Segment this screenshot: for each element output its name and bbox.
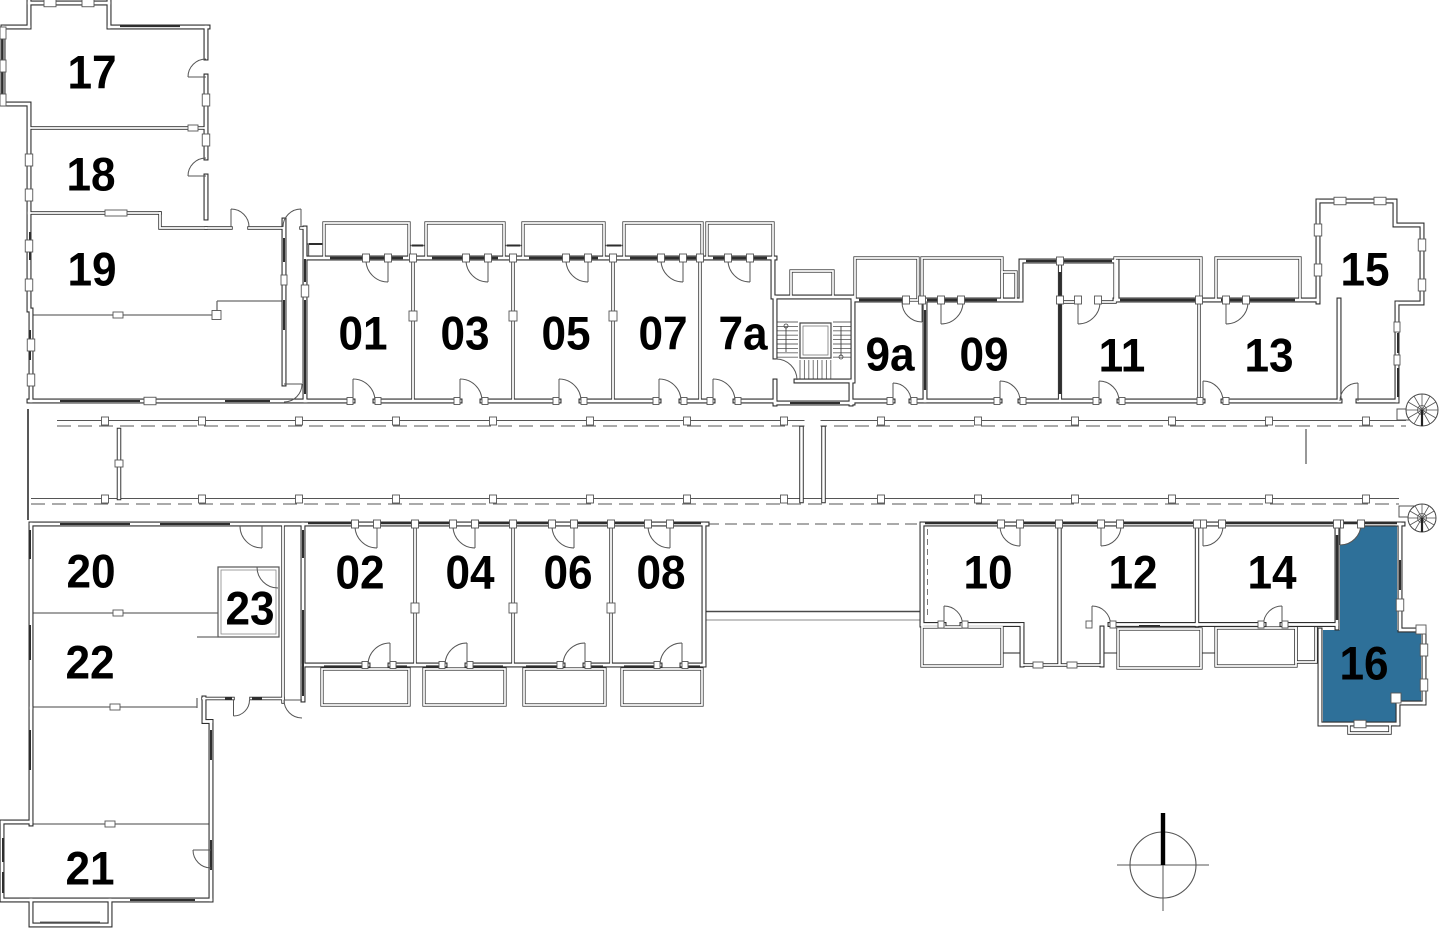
svg-text:11: 11 xyxy=(1099,328,1146,382)
svg-text:07: 07 xyxy=(638,306,687,360)
svg-text:09: 09 xyxy=(959,327,1008,381)
svg-text:04: 04 xyxy=(445,545,495,599)
svg-text:10: 10 xyxy=(963,545,1012,599)
svg-text:15: 15 xyxy=(1340,242,1389,296)
svg-text:20: 20 xyxy=(66,544,115,598)
svg-text:7a: 7a xyxy=(718,306,768,360)
svg-text:02: 02 xyxy=(335,545,384,599)
svg-text:19: 19 xyxy=(67,242,116,296)
svg-text:21: 21 xyxy=(65,841,114,895)
svg-text:03: 03 xyxy=(440,306,489,360)
svg-text:01: 01 xyxy=(338,306,387,360)
svg-text:23: 23 xyxy=(225,581,274,635)
svg-text:9a: 9a xyxy=(865,327,915,381)
svg-text:14: 14 xyxy=(1247,545,1297,599)
svg-text:13: 13 xyxy=(1244,328,1293,382)
svg-text:05: 05 xyxy=(541,306,590,360)
svg-text:22: 22 xyxy=(65,635,114,689)
svg-text:08: 08 xyxy=(636,545,685,599)
svg-text:16: 16 xyxy=(1339,636,1388,690)
svg-text:06: 06 xyxy=(543,545,592,599)
svg-text:17: 17 xyxy=(67,45,116,99)
svg-text:12: 12 xyxy=(1108,545,1157,599)
svg-text:18: 18 xyxy=(66,147,115,201)
